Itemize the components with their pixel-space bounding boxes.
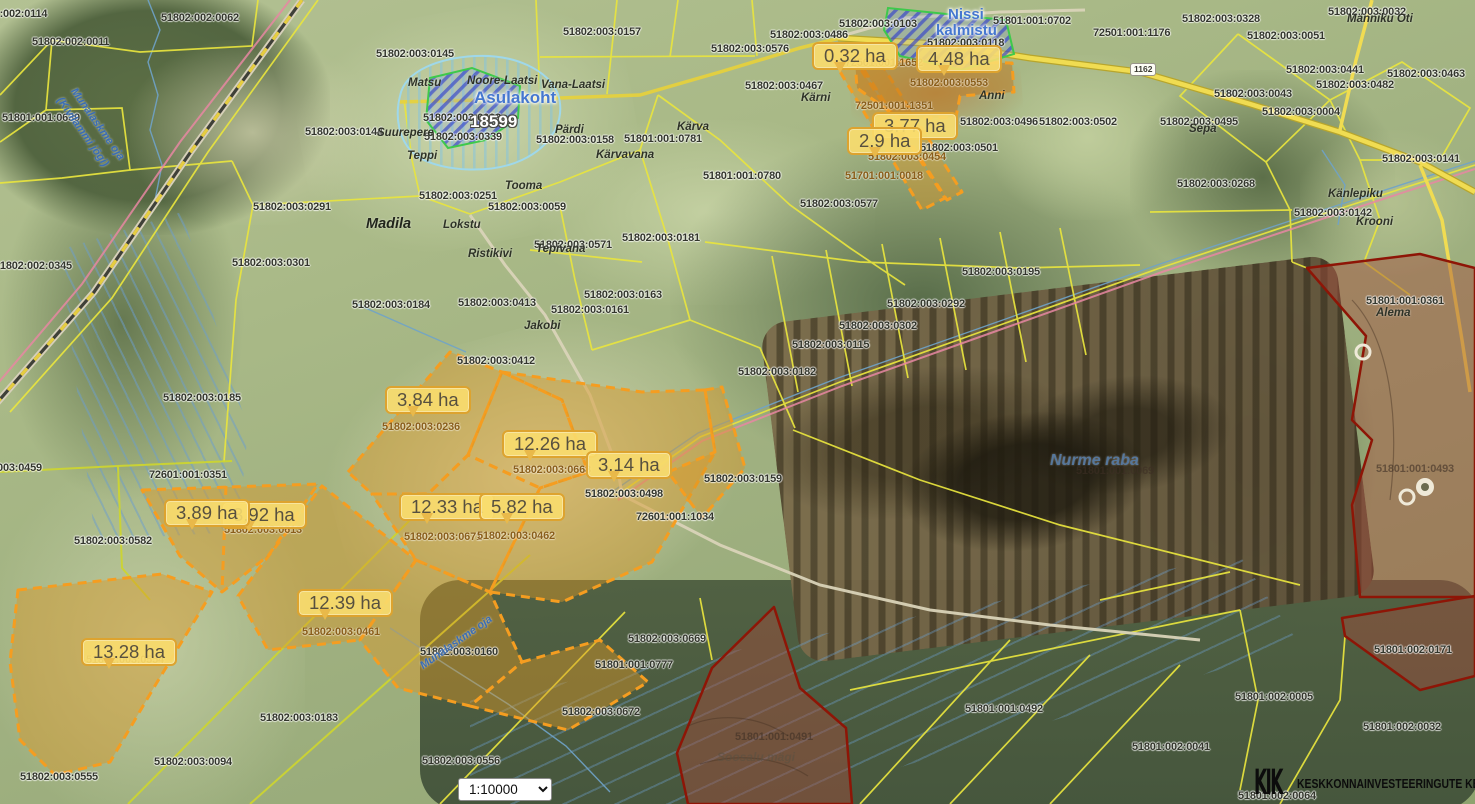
watermark: KIK KESKKONNAINVESTEERINGUTE KESKUS (1254, 768, 1475, 798)
map-vector-overlay (0, 0, 1475, 804)
watermark-text: KESKKONNAINVESTEERINGUTE KESKUS (1297, 776, 1475, 791)
kik-logo-icon: KIK (1254, 766, 1282, 800)
scale-select[interactable]: 1:10000 (458, 778, 552, 801)
road-number-badge: 1162 (1130, 63, 1156, 76)
railway (0, 0, 302, 405)
admin-border (0, 0, 1475, 500)
map-viewport[interactable]: 51802:002:011451802:002:006251802:002:00… (0, 0, 1475, 804)
stream-lines (148, 0, 1475, 792)
